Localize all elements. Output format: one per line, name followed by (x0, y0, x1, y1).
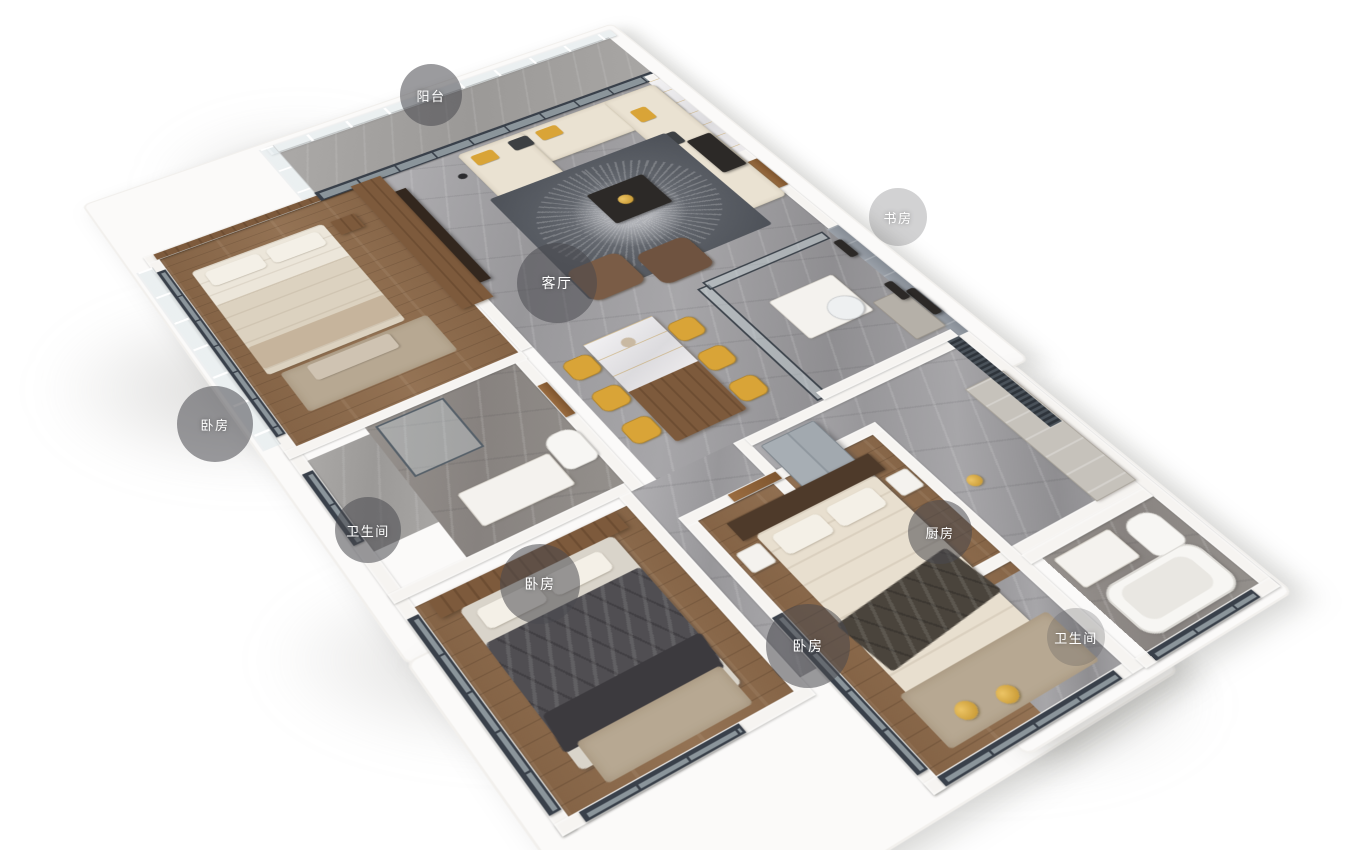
room-label-text: 卫生间 (1054, 628, 1098, 647)
room-label-text: 客厅 (542, 273, 573, 293)
room-label-text: 卧房 (525, 574, 556, 594)
room-label-text: 阳台 (416, 86, 445, 105)
room-label-text: 卫生间 (346, 521, 390, 540)
room-label-kitchen[interactable]: 厨房 (908, 500, 972, 564)
room-label-text: 书房 (883, 208, 912, 227)
floorplan-viewport: 阳台 客厅 书房 卧房 卫生间 卧房 厨房 卧房 卫生间 (0, 0, 1372, 850)
room-label-text: 厨房 (925, 523, 954, 542)
room-label-balcony[interactable]: 阳台 (400, 64, 462, 126)
floor-plan (107, 35, 1298, 850)
room-label-bedroom-west[interactable]: 卧房 (177, 386, 253, 462)
room-label-text: 卧房 (200, 415, 229, 434)
room-label-bedroom-south[interactable]: 卧房 (766, 604, 850, 688)
room-label-bathroom-main[interactable]: 卫生间 (335, 497, 401, 563)
room-label-living-room[interactable]: 客厅 (517, 243, 597, 323)
room-label-study[interactable]: 书房 (869, 188, 927, 246)
room-label-bathroom-second[interactable]: 卫生间 (1047, 608, 1105, 666)
room-label-text: 卧房 (793, 636, 824, 656)
room-label-bedroom-center[interactable]: 卧房 (500, 544, 580, 624)
